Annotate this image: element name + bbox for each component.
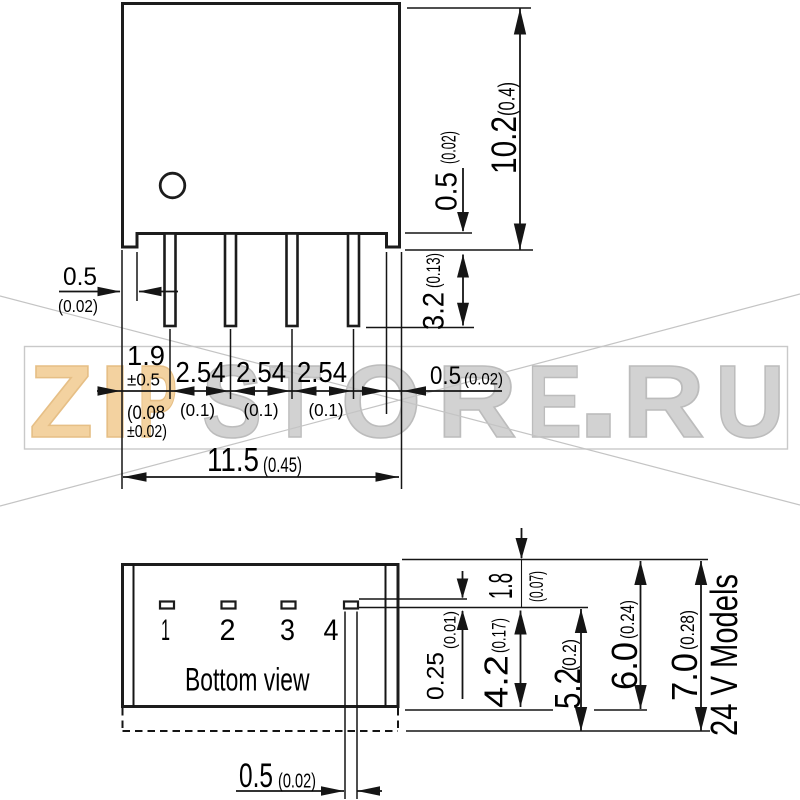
svg-text:(0.2): (0.2) [560, 639, 581, 671]
svg-text:7.0: 7.0 [664, 653, 705, 701]
svg-text:0.5: 0.5 [430, 362, 461, 390]
svg-text:±0.02): ±0.02) [127, 421, 167, 441]
svg-text:(0.45): (0.45) [263, 454, 302, 477]
svg-text:(0.1): (0.1) [309, 400, 344, 420]
svg-text:U: U [715, 344, 785, 459]
svg-text:0.5: 0.5 [239, 757, 273, 795]
svg-text:2.54: 2.54 [236, 357, 286, 389]
svg-text:0.5: 0.5 [429, 172, 464, 211]
svg-text:(0.07): (0.07) [527, 571, 548, 602]
svg-text:I: I [100, 344, 130, 459]
svg-text:(0.02): (0.02) [58, 296, 98, 316]
svg-text:(0.01): (0.01) [441, 611, 460, 649]
svg-text:4: 4 [324, 614, 339, 647]
svg-text:0.25: 0.25 [423, 652, 450, 700]
svg-text:1: 1 [161, 614, 170, 647]
svg-text:E: E [527, 344, 582, 459]
svg-text:10.2: 10.2 [485, 116, 524, 174]
svg-text:(0.24): (0.24) [618, 600, 639, 639]
svg-text:2.54: 2.54 [297, 357, 347, 389]
svg-text:1.8: 1.8 [482, 573, 519, 599]
svg-text:5.2: 5.2 [547, 668, 588, 709]
svg-text:(0.28): (0.28) [678, 610, 699, 650]
svg-text:24 V Models: 24 V Models [704, 574, 746, 736]
svg-text:(0.1): (0.1) [180, 400, 215, 420]
svg-text:(0.1): (0.1) [244, 400, 279, 420]
svg-text:4.2: 4.2 [478, 655, 515, 708]
svg-text:(0.02): (0.02) [464, 370, 503, 389]
svg-text:3.2: 3.2 [418, 292, 451, 330]
svg-text:2.54: 2.54 [176, 357, 226, 389]
svg-text:11.5: 11.5 [207, 441, 259, 478]
svg-text:R: R [622, 344, 705, 459]
svg-text:0.5: 0.5 [63, 263, 97, 291]
svg-text:±0.5: ±0.5 [127, 370, 160, 390]
svg-text:3: 3 [280, 614, 295, 647]
svg-text:Bottom view: Bottom view [185, 662, 310, 698]
svg-text:6.0: 6.0 [604, 642, 645, 690]
svg-text:Z: Z [29, 344, 93, 459]
svg-text:(0.02): (0.02) [439, 131, 461, 164]
svg-text:(0.17): (0.17) [490, 618, 511, 653]
svg-text:(0.13): (0.13) [424, 253, 445, 288]
svg-text:(0.4): (0.4) [494, 82, 520, 116]
svg-text:2: 2 [220, 614, 236, 647]
svg-text:(0.02): (0.02) [278, 771, 316, 793]
svg-text:1.9: 1.9 [127, 340, 165, 371]
